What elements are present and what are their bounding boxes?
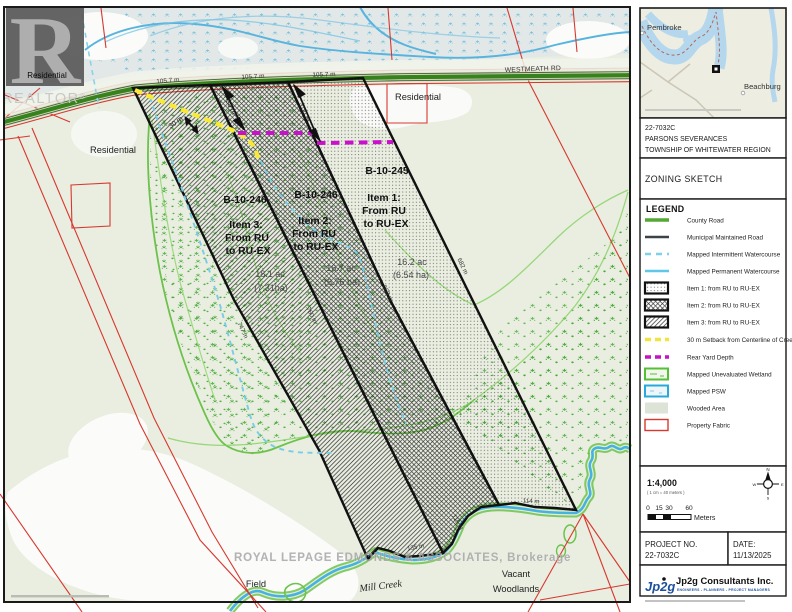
svg-text:B-10-246: B-10-246 <box>294 190 338 201</box>
svg-text:(6.54 ha): (6.54 ha) <box>393 270 429 280</box>
svg-text:Vacant: Vacant <box>502 569 531 579</box>
svg-text:Item 2:: Item 2: <box>298 216 332 227</box>
svg-text:(7.31ha): (7.31ha) <box>254 283 288 293</box>
svg-text:S: S <box>767 496 770 501</box>
svg-text:Wooded Area: Wooded Area <box>687 406 726 413</box>
svg-text:16.7 ac: 16.7 ac <box>326 263 356 273</box>
svg-text:PARSONS SEVERANCES: PARSONS SEVERANCES <box>645 136 728 143</box>
svg-text:Field: Field <box>246 579 266 589</box>
svg-text:N: N <box>766 467 769 472</box>
svg-text:ENGINEERS - PLANNERS - PROJECT: ENGINEERS - PLANNERS - PROJECT MANAGERS <box>677 588 771 592</box>
svg-text:Item 3:: Item 3: <box>229 220 263 231</box>
svg-text:Woodlands: Woodlands <box>493 584 540 594</box>
svg-text:22-7032C: 22-7032C <box>645 551 680 560</box>
svg-text:( 1 cm = 40 meters ): ( 1 cm = 40 meters ) <box>647 490 685 495</box>
svg-text:18.1 ac: 18.1 ac <box>255 269 285 279</box>
svg-text:REALTOR®: REALTOR® <box>2 91 87 107</box>
svg-text:Item 1:: Item 1: <box>367 193 401 204</box>
svg-text:Pembroke: Pembroke <box>647 23 682 32</box>
svg-text:to RU-EX: to RU-EX <box>363 219 408 230</box>
svg-text:Property Fabric: Property Fabric <box>687 423 730 430</box>
svg-text:E: E <box>781 482 784 487</box>
svg-text:0: 0 <box>646 505 650 512</box>
svg-text:Mapped Permanent Watercourse: Mapped Permanent Watercourse <box>687 269 780 276</box>
svg-text:105.7 m: 105.7 m <box>312 71 335 79</box>
svg-text:LEGEND: LEGEND <box>646 204 684 214</box>
svg-text:11/13/2025: 11/13/2025 <box>733 551 772 560</box>
svg-text:30: 30 <box>665 505 673 512</box>
svg-text:114 m: 114 m <box>523 498 540 506</box>
svg-text:to RU-EX: to RU-EX <box>293 242 338 253</box>
svg-text:B-10-245: B-10-245 <box>365 166 409 177</box>
svg-text:(6.76 ha): (6.76 ha) <box>324 277 360 287</box>
svg-text:From RU: From RU <box>225 233 269 244</box>
svg-text:Mapped Intermittent Watercours: Mapped Intermittent Watercourse <box>687 252 781 259</box>
svg-text:ROYAL LEPAGE EDMONDS & ASSOCIA: ROYAL LEPAGE EDMONDS & ASSOCIATES, Broke… <box>234 552 571 564</box>
svg-text:Municipal Maintained Road: Municipal Maintained Road <box>687 235 763 242</box>
svg-text:16.2 ac: 16.2 ac <box>397 257 427 267</box>
svg-text:TOWNSHIP OF WHITEWATER REGION: TOWNSHIP OF WHITEWATER REGION <box>645 147 771 154</box>
svg-text:Item 1: from RU to RU-EX: Item 1: from RU to RU-EX <box>687 286 761 293</box>
svg-text:105.7 m: 105.7 m <box>241 73 264 81</box>
svg-text:Item 3: from RU to RU-EX: Item 3: from RU to RU-EX <box>687 320 761 327</box>
svg-text:From RU: From RU <box>362 206 406 217</box>
svg-text:DATE:: DATE: <box>733 540 755 549</box>
svg-text:30 m Setback from Centerline o: 30 m Setback from Centerline of Creek <box>687 337 792 344</box>
svg-text:Meters: Meters <box>694 515 716 522</box>
svg-text:Jp2g Consultants Inc.: Jp2g Consultants Inc. <box>676 575 773 586</box>
svg-text:1:4,000: 1:4,000 <box>647 478 677 488</box>
svg-text:Jp2g: Jp2g <box>645 579 675 594</box>
svg-text:ZONING SKETCH: ZONING SKETCH <box>645 174 723 184</box>
svg-text:Item 2: from RU to RU-EX: Item 2: from RU to RU-EX <box>687 303 761 310</box>
svg-text:Residential: Residential <box>27 71 67 80</box>
svg-text:W: W <box>753 482 757 487</box>
svg-text:Mapped PSW: Mapped PSW <box>687 389 726 396</box>
svg-text:Rear Yard Depth: Rear Yard Depth <box>687 355 734 362</box>
svg-text:County Road: County Road <box>687 218 724 225</box>
svg-text:PROJECT NO.: PROJECT NO. <box>645 540 697 549</box>
svg-text:Mapped Unevaluated Wetland: Mapped Unevaluated Wetland <box>687 372 772 379</box>
svg-text:60: 60 <box>685 505 693 512</box>
svg-text:22-7032C: 22-7032C <box>645 125 675 132</box>
svg-text:15: 15 <box>655 505 663 512</box>
svg-text:Residential: Residential <box>395 92 441 102</box>
svg-text:B-10-246: B-10-246 <box>223 195 267 206</box>
svg-text:Residential: Residential <box>90 145 136 155</box>
svg-text:Beachburg: Beachburg <box>744 82 781 91</box>
svg-text:to RU-EX: to RU-EX <box>225 246 270 257</box>
svg-text:From RU: From RU <box>292 229 336 240</box>
